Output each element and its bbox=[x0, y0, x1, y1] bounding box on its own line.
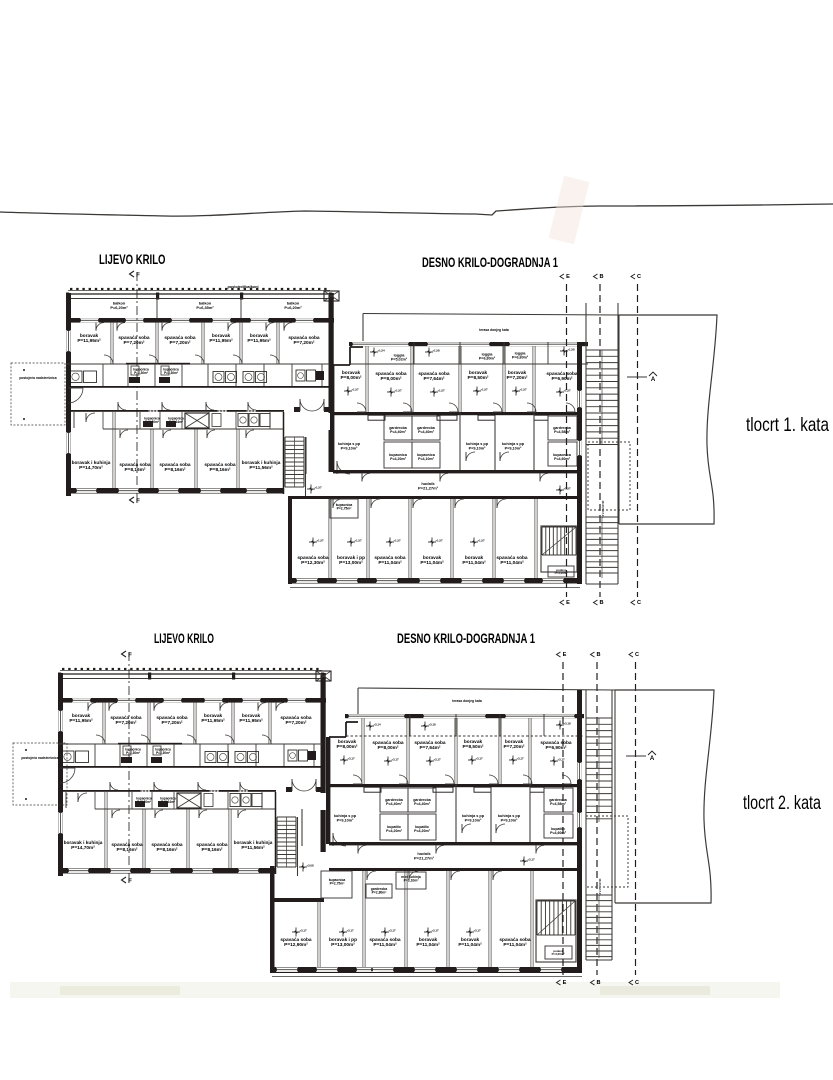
svg-text:kupaonicaP=4,10m²: kupaonicaP=4,10m² bbox=[417, 453, 436, 461]
svg-text:boravakP=8,00m²: boravakP=8,00m² bbox=[337, 739, 358, 750]
svg-text:+3,17: +3,17 bbox=[391, 758, 399, 762]
svg-text:+1,57: +1,57 bbox=[563, 487, 571, 491]
svg-text:postojeća nadstrešnica: postojeća nadstrešnica bbox=[21, 756, 58, 760]
svg-text:C: C bbox=[635, 980, 639, 986]
svg-text:F: F bbox=[128, 879, 132, 885]
svg-text:boravakP=8,50m²: boravakP=8,50m² bbox=[468, 370, 489, 381]
svg-text:kuhinja s ppP=9,10m²: kuhinja s ppP=9,10m² bbox=[334, 814, 357, 822]
svg-text:DESNO KRILO-DOGRADNJA 1: DESNO KRILO-DOGRADNJA 1 bbox=[422, 255, 558, 270]
svg-text:+3,17: +3,17 bbox=[388, 929, 396, 933]
svg-text:+3,18: +3,18 bbox=[428, 723, 436, 727]
svg-text:+1,57: +1,57 bbox=[314, 486, 322, 490]
svg-text:+1,57: +1,57 bbox=[437, 389, 445, 393]
svg-text:kupaonicaP=2,30m²: kupaonicaP=2,30m² bbox=[125, 748, 141, 755]
svg-text:+1,57: +1,57 bbox=[477, 539, 485, 543]
svg-text:boravak i ppP=13,00m²: boravak i ppP=13,00m² bbox=[329, 937, 357, 948]
svg-text:boravakP=11,04m²: boravakP=11,04m² bbox=[420, 555, 444, 566]
svg-text:F: F bbox=[136, 273, 140, 279]
svg-text:tlocrt 1. kata: tlocrt 1. kata bbox=[746, 414, 829, 436]
svg-text:B: B bbox=[596, 652, 600, 658]
svg-text:+3,17: +3,17 bbox=[433, 758, 441, 762]
svg-text:+1,57: +1,57 bbox=[519, 388, 527, 392]
svg-text:boravakP=11,04m²: boravakP=11,04m² bbox=[458, 937, 482, 948]
svg-text:DESNO KRILO-DOGRADNJA 1: DESNO KRILO-DOGRADNJA 1 bbox=[397, 631, 535, 646]
svg-text:C: C bbox=[637, 274, 641, 280]
svg-text:boravakP=11,95m²: boravakP=11,95m² bbox=[247, 333, 271, 344]
svg-text:podestP=3,00m²: podestP=3,00m² bbox=[555, 568, 568, 575]
svg-text:kupaonicaP=3,30m²: kupaonicaP=3,30m² bbox=[155, 748, 171, 755]
svg-text:E: E bbox=[563, 980, 567, 986]
svg-text:spavaća sobaP=11,04m²: spavaća sobaP=11,04m² bbox=[496, 555, 528, 566]
svg-text:10x30,5x17,25: 10x30,5x17,25 bbox=[601, 500, 605, 518]
svg-text:C: C bbox=[637, 600, 641, 606]
svg-text:garderobaP=2,80m²: garderobaP=2,80m² bbox=[371, 887, 388, 895]
svg-text:postojeća nadstrešnica: postojeća nadstrešnica bbox=[19, 376, 56, 380]
svg-text:+1,57: +1,57 bbox=[435, 539, 443, 543]
svg-text:kupaonicaP=3,30m²: kupaonicaP=3,30m² bbox=[163, 368, 179, 375]
svg-text:B: B bbox=[599, 274, 603, 280]
svg-text:+1,58: +1,58 bbox=[567, 348, 575, 352]
svg-text:kupatiloP=4,20m²: kupatiloP=4,20m² bbox=[386, 825, 403, 833]
svg-text:boravakP=7,20m²: boravakP=7,20m² bbox=[504, 739, 525, 750]
svg-text:+1,57: +1,57 bbox=[393, 539, 401, 543]
svg-text:boravakP=11,04m²: boravakP=11,04m² bbox=[416, 937, 440, 948]
svg-text:E: E bbox=[563, 652, 567, 658]
svg-text:+1,57: +1,57 bbox=[394, 389, 402, 393]
svg-text:spavaća sobaP=11,04m²: spavaća sobaP=11,04m² bbox=[369, 937, 401, 948]
svg-text:kupaonicaP=2,30m²: kupaonicaP=2,30m² bbox=[133, 368, 149, 375]
svg-text:E: E bbox=[566, 600, 570, 606]
svg-text:boravakP=11,95m²: boravakP=11,95m² bbox=[77, 333, 101, 344]
svg-text:terasa donjeg kata: terasa donjeg kata bbox=[479, 328, 509, 332]
svg-text:kupaonicaP=2,75m²: kupaonicaP=2,75m² bbox=[336, 503, 353, 511]
svg-text:F: F bbox=[128, 653, 132, 659]
svg-text:LIJEVO KRILO: LIJEVO KRILO bbox=[99, 252, 166, 267]
svg-text:kupatiloP=4,20m²: kupatiloP=4,20m² bbox=[414, 825, 431, 833]
svg-text:A: A bbox=[650, 756, 655, 762]
svg-text:mini kuhinjaP=3,10m²: mini kuhinjaP=3,10m² bbox=[401, 875, 421, 883]
svg-text:spavaća sobaP=12,90m²: spavaća sobaP=12,90m² bbox=[280, 937, 312, 948]
svg-text:+3,18: +3,18 bbox=[563, 722, 571, 726]
svg-text:+1,57: +1,57 bbox=[351, 388, 359, 392]
svg-text:boravakP=8,50m²: boravakP=8,50m² bbox=[463, 739, 484, 750]
svg-text:+1,57: +1,57 bbox=[316, 539, 324, 543]
svg-text:garderobaP=4,40m²: garderobaP=4,40m² bbox=[385, 798, 404, 806]
svg-text:+3,17: +3,17 bbox=[299, 929, 307, 933]
svg-text:tlocrt 2. kata: tlocrt 2. kata bbox=[743, 793, 821, 814]
svg-text:boravakP=11,95m²: boravakP=11,95m² bbox=[201, 713, 225, 724]
svg-text:+3,14: +3,14 bbox=[373, 723, 381, 727]
svg-text:B: B bbox=[596, 980, 600, 986]
svg-text:kuhinja s ppP=9,10m²: kuhinja s ppP=9,10m² bbox=[466, 442, 489, 450]
svg-text:+3,17: +3,17 bbox=[516, 757, 524, 761]
svg-text:+3,17: +3,17 bbox=[475, 757, 483, 761]
svg-text:garderobaP=4,58m²: garderobaP=4,58m² bbox=[553, 426, 572, 434]
svg-text:+1,57: +1,57 bbox=[563, 389, 571, 393]
svg-text:+1,54: +1,54 bbox=[377, 349, 385, 353]
svg-text:+3,17: +3,17 bbox=[347, 757, 355, 761]
svg-text:boravak i ppP=13,00m²: boravak i ppP=13,00m² bbox=[337, 555, 365, 566]
svg-text:F: F bbox=[136, 499, 140, 505]
svg-text:+1,57: +1,57 bbox=[354, 539, 362, 543]
svg-text:boravakP=7,20m²: boravakP=7,20m² bbox=[507, 370, 528, 381]
svg-text:kupatiloP=4,60m²: kupatiloP=4,60m² bbox=[550, 827, 567, 835]
svg-text:LIJEVO KRILO: LIJEVO KRILO bbox=[154, 631, 214, 646]
svg-text:terasa donjeg kata: terasa donjeg kata bbox=[452, 699, 482, 703]
svg-text:kupaonicaP=4,20m²: kupaonicaP=4,20m² bbox=[389, 453, 408, 461]
svg-text:+3,17: +3,17 bbox=[346, 929, 354, 933]
svg-text:kuhinja s ppP=9,10m²: kuhinja s ppP=9,10m² bbox=[462, 814, 485, 822]
svg-text:+3,17: +3,17 bbox=[527, 858, 535, 862]
svg-text:+3,08: +3,08 bbox=[306, 864, 314, 868]
svg-text:+3,17: +3,17 bbox=[557, 758, 565, 762]
svg-text:boravakP=11,95m²: boravakP=11,95m² bbox=[209, 333, 233, 344]
svg-text:+3,17: +3,17 bbox=[431, 929, 439, 933]
svg-text:B: B bbox=[599, 600, 603, 606]
svg-text:boravakP=11,04m²: boravakP=11,04m² bbox=[462, 555, 486, 566]
svg-text:garderobaP=4,40m²: garderobaP=4,40m² bbox=[417, 426, 436, 434]
svg-text:C: C bbox=[635, 652, 639, 658]
svg-text:+1,57: +1,57 bbox=[480, 388, 488, 392]
svg-text:+1,58: +1,58 bbox=[432, 349, 440, 353]
svg-text:garderobaP=4,40m²: garderobaP=4,40m² bbox=[389, 426, 408, 434]
svg-text:kupaonicaP=2,75m²: kupaonicaP=2,75m² bbox=[329, 878, 346, 886]
svg-text:boravakP=11,95m²: boravakP=11,95m² bbox=[239, 713, 263, 724]
svg-text:postojećiIbalkoni: postojećiIbalkoni bbox=[227, 285, 258, 289]
svg-text:garderobaP=4,58m²: garderobaP=4,58m² bbox=[549, 798, 568, 806]
svg-text:spavaća sobaP=12,30m²: spavaća sobaP=12,30m² bbox=[297, 555, 329, 566]
svg-text:boravakP=8,00m²: boravakP=8,00m² bbox=[341, 370, 362, 381]
svg-text:kupaonicaP=4,60m²: kupaonicaP=4,60m² bbox=[553, 453, 572, 461]
svg-text:boravakP=11,95m²: boravakP=11,95m² bbox=[69, 713, 93, 724]
svg-text:kuhinja s ppP=9,10m²: kuhinja s ppP=9,10m² bbox=[338, 442, 361, 450]
svg-text:spavaća sobaP=11,04m²: spavaća sobaP=11,04m² bbox=[374, 555, 406, 566]
svg-text:+3,17: +3,17 bbox=[473, 929, 481, 933]
svg-text:E: E bbox=[566, 274, 570, 280]
svg-text:A: A bbox=[651, 377, 656, 383]
svg-text:spavaća sobaP=11,04m²: spavaća sobaP=11,04m² bbox=[499, 937, 531, 948]
svg-text:kuhinja s ppP=9,10m²: kuhinja s ppP=9,10m² bbox=[502, 442, 525, 450]
svg-text:garderobaP=4,40m²: garderobaP=4,40m² bbox=[413, 798, 432, 806]
svg-text:kuhinja s ppP=9,10m²: kuhinja s ppP=9,10m² bbox=[498, 814, 521, 822]
